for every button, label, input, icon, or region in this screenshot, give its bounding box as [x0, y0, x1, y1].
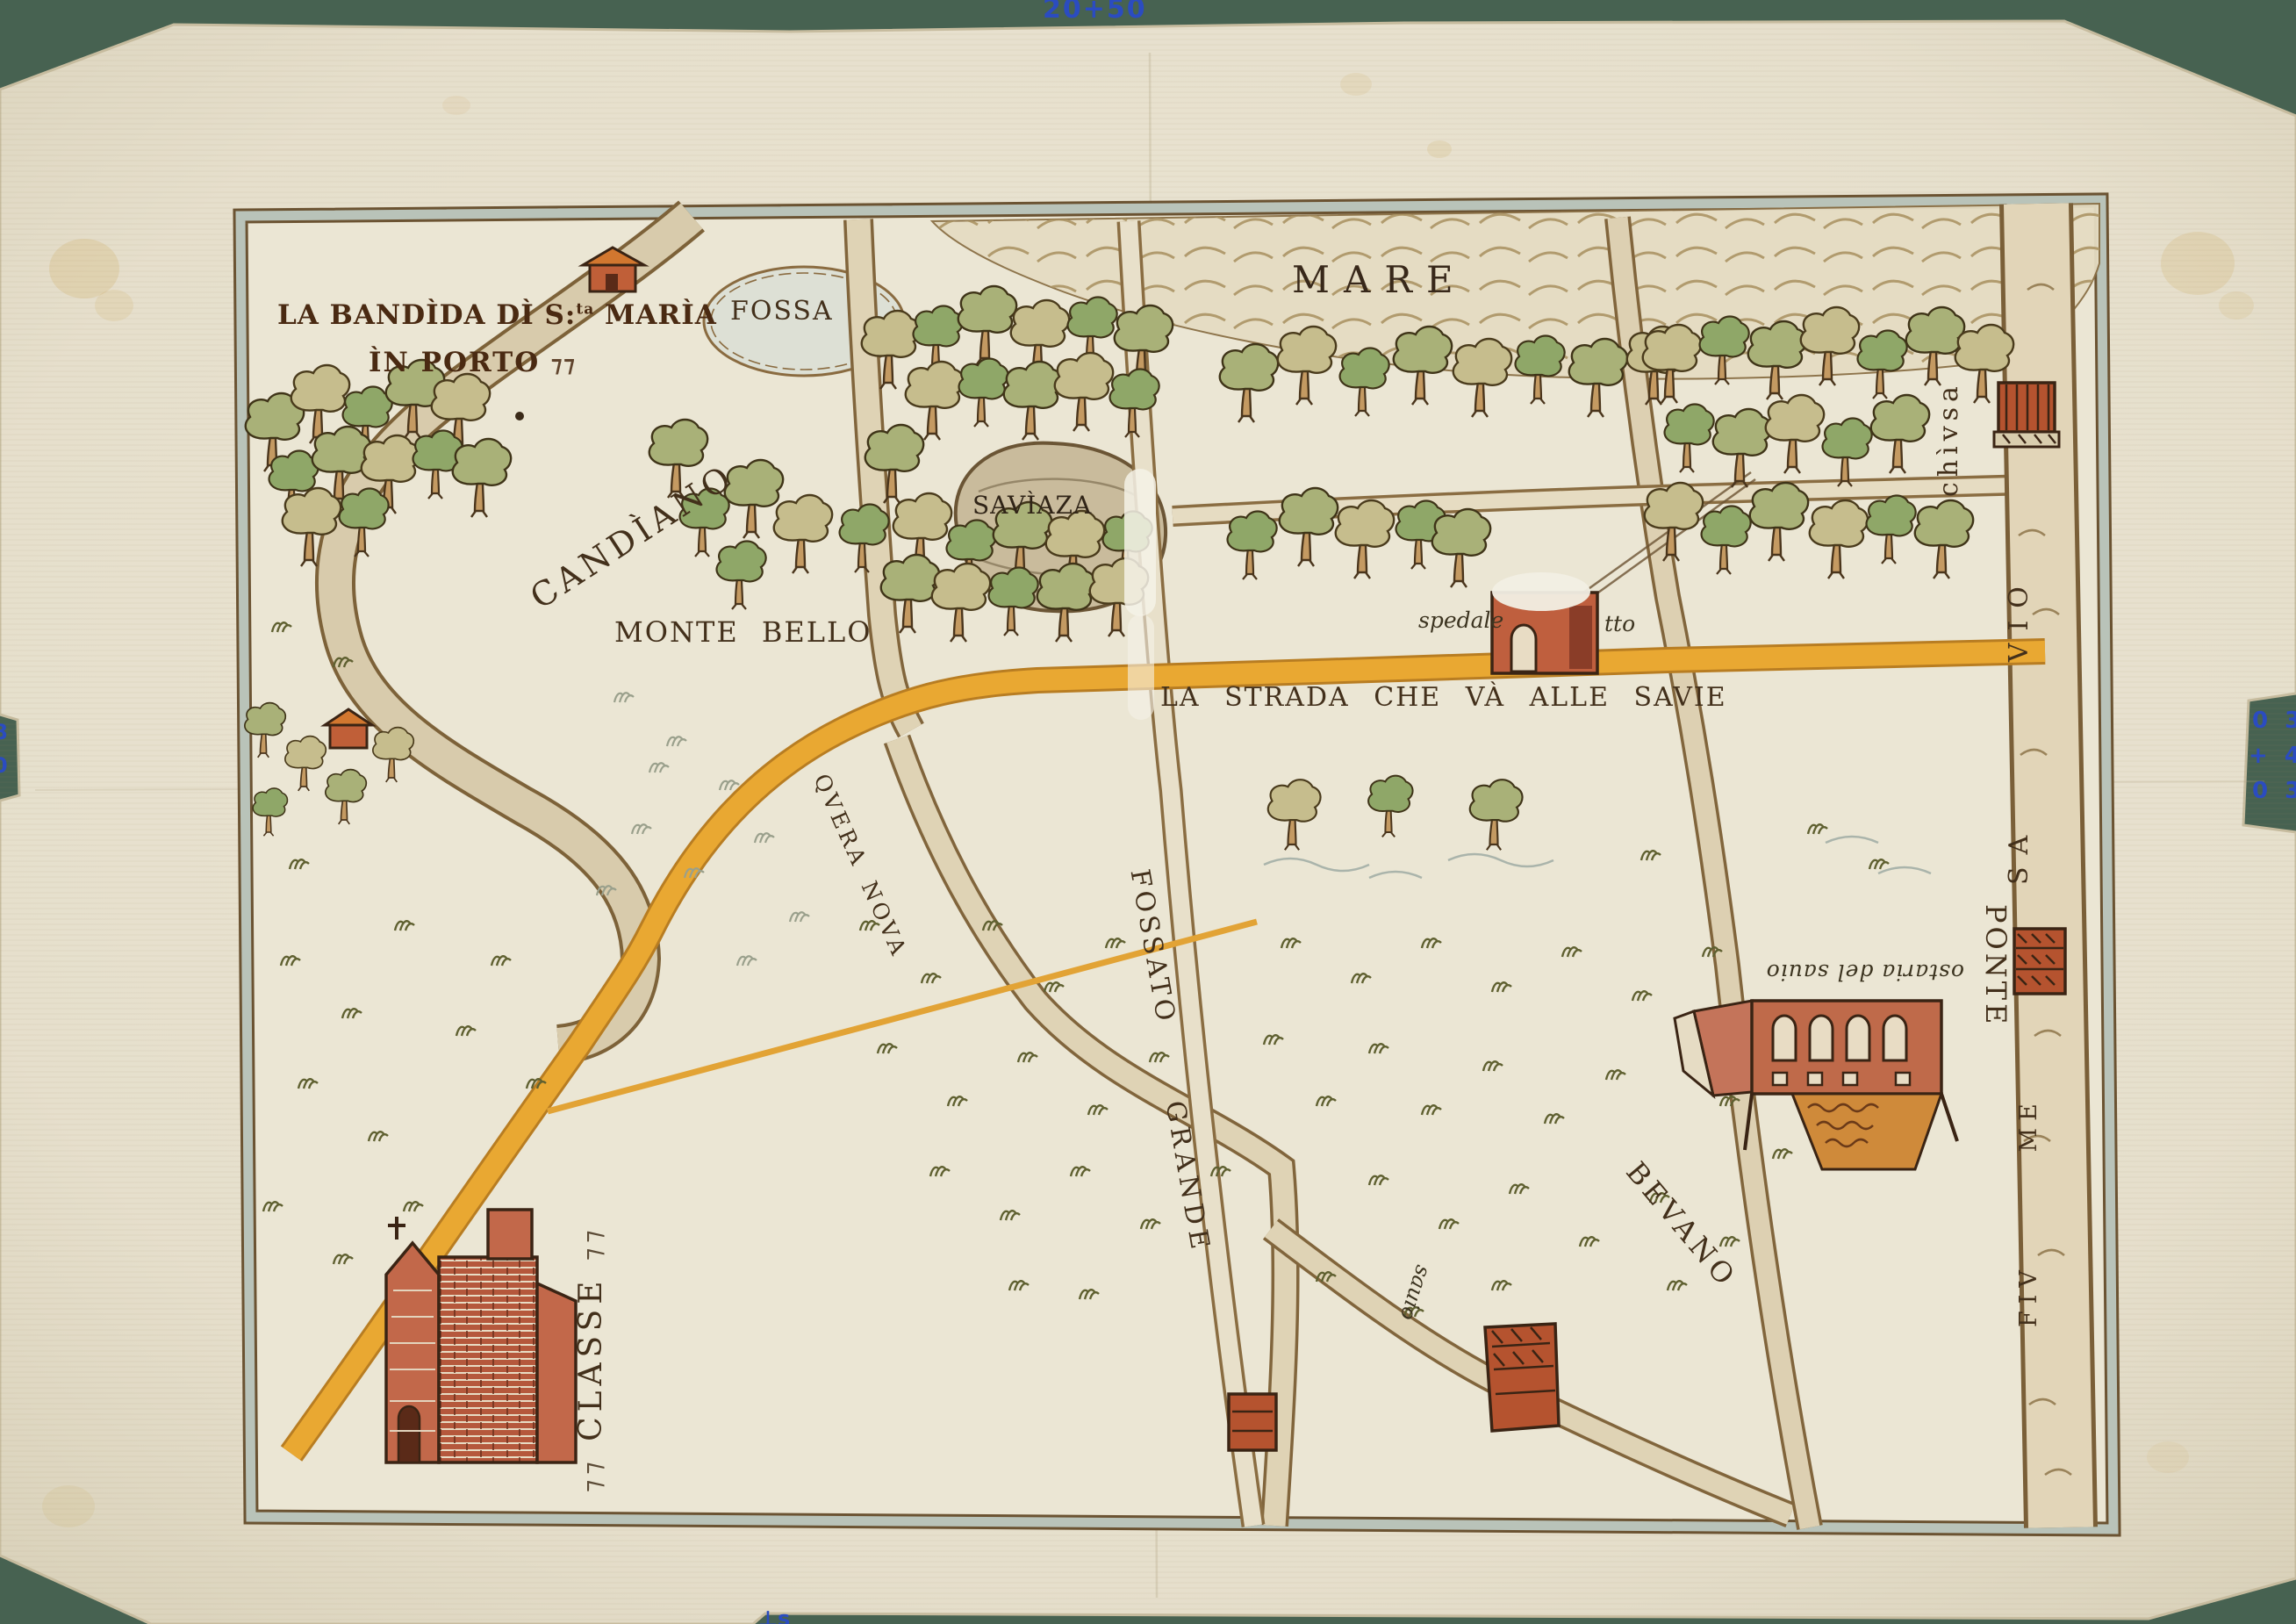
- title-superscript: ta: [576, 301, 594, 319]
- title-line2-text: ÌN PORTO: [369, 347, 540, 378]
- map-drawing: [0, 0, 2296, 1624]
- south-bridge: [1485, 1324, 1559, 1431]
- label-strada: LA STRADA CHE VÀ ALLE SAVIE: [1160, 685, 1727, 711]
- label-spedale: spedale: [1418, 609, 1503, 631]
- label-mare: MARE: [1292, 262, 1467, 298]
- classe-flourish-2: ⁊⁊: [578, 1225, 607, 1261]
- chivsa-sluice: [1994, 383, 2059, 447]
- archive-mark-top: 20+50: [1043, 0, 1147, 23]
- spedale-building: [1492, 572, 1597, 673]
- title-flourish: ⁊⁊: [551, 351, 577, 377]
- small-building: [1229, 1394, 1276, 1450]
- classe-flourish-1: ⁊⁊: [578, 1456, 607, 1492]
- map-title-line2: ÌN PORTO ⁊⁊: [369, 349, 577, 377]
- title-part1: LA BANDÌDA DÌ S:: [277, 299, 576, 331]
- archive-mark-right-3: 0 3: [2252, 780, 2296, 802]
- archive-mark-left-1: 8: [0, 722, 8, 743]
- label-chivsa: chìvsa: [1936, 381, 1962, 497]
- label-fossa: FOSSA: [730, 298, 834, 325]
- ponte-bridge: [2014, 929, 2065, 994]
- title-part2: MARÌA: [594, 299, 716, 331]
- map-title-line1: LA BANDÌDA DÌ S:ta MARÌA: [277, 302, 717, 329]
- classe-text: CLASSE: [573, 1275, 609, 1441]
- archive-mark-right-2: + 4: [2249, 744, 2296, 767]
- label-spedale-suffix: tto: [1604, 613, 1635, 635]
- archive-mark-right-1: 0 3: [2252, 709, 2296, 732]
- label-ponte: PONTE: [1982, 904, 2010, 1027]
- label-osteria: ostaria del sauio: [1766, 961, 1964, 983]
- photographed-map: LA BANDÌDA DÌ S:ta MARÌA ÌN PORTO ⁊⁊ MAR…: [0, 0, 2296, 1624]
- label-savio-lower: FIV ME: [2017, 1096, 2041, 1327]
- label-monte-bello: MONTE BELLO: [614, 618, 872, 646]
- archive-mark-left-2: 0: [0, 755, 8, 776]
- archive-mark-bottom: ⊥s: [758, 1608, 790, 1624]
- label-classe: ⁊⁊ CLASSE ⁊⁊: [576, 1225, 607, 1492]
- label-savio-upper: SA VIO: [2006, 574, 2033, 885]
- label-saviaza: SAVÌAZA: [972, 493, 1092, 518]
